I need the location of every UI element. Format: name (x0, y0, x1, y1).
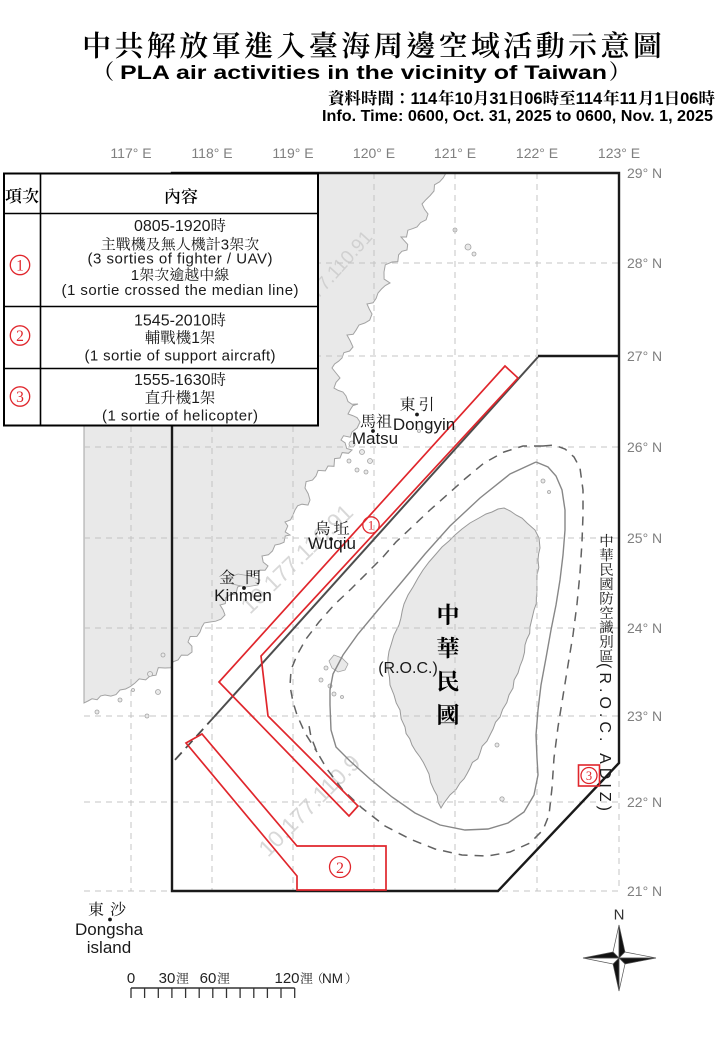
svg-text:123° E: 123° E (598, 145, 640, 161)
svg-text:Wuqiu: Wuqiu (308, 534, 356, 553)
svg-text:120: 120 (274, 970, 299, 987)
svg-text:2: 2 (336, 860, 344, 877)
svg-text:24° N: 24° N (627, 620, 662, 636)
svg-text:114: 114 (576, 90, 603, 108)
svg-text:114: 114 (411, 90, 438, 108)
svg-text:23° N: 23° N (627, 708, 662, 724)
svg-text:2: 2 (16, 328, 24, 345)
svg-text:Dongsha: Dongsha (75, 920, 144, 939)
svg-text:(1 sortie of support aircraft): (1 sortie of support aircraft) (85, 348, 276, 365)
svg-text:120° E: 120° E (353, 145, 395, 161)
svg-text:22° N: 22° N (627, 794, 662, 810)
svg-text:122° E: 122° E (516, 145, 558, 161)
svg-text:21° N: 21° N (627, 883, 662, 899)
svg-text:27° N: 27° N (627, 348, 662, 364)
svg-text:1545-2010: 1545-2010 (134, 313, 211, 330)
svg-text:31: 31 (489, 90, 507, 108)
svg-text:117° E: 117° E (110, 145, 151, 161)
svg-text:(1 sortie crossed the median l: (1 sortie crossed the median line) (62, 282, 299, 299)
svg-text:11: 11 (620, 90, 637, 108)
svg-text:0805-1920: 0805-1920 (134, 218, 211, 235)
svg-text:3: 3 (586, 769, 592, 783)
svg-text:30: 30 (159, 970, 176, 987)
svg-text:3: 3 (16, 389, 24, 406)
svg-text:island: island (87, 938, 131, 957)
svg-text:1: 1 (654, 90, 663, 108)
svg-text:1: 1 (16, 258, 24, 275)
svg-text:25° N: 25° N (627, 530, 662, 546)
svg-text:121° E: 121° E (434, 145, 476, 161)
svg-text:(1 sortie of helicopter): (1 sortie of helicopter) (102, 408, 258, 425)
svg-text:Dongyin: Dongyin (393, 415, 455, 434)
svg-text:06: 06 (680, 90, 698, 108)
svg-text:(3 sorties of fighter / UAV): (3 sorties of fighter / UAV) (88, 251, 273, 268)
svg-text:1: 1 (191, 390, 200, 407)
svg-text:1555-1630: 1555-1630 (134, 372, 211, 389)
svg-text:NM: NM (322, 971, 343, 986)
svg-text:28° N: 28° N (627, 255, 662, 271)
svg-text:1: 1 (368, 518, 375, 533)
svg-text:0: 0 (127, 970, 135, 987)
svg-text:119° E: 119° E (272, 145, 313, 161)
svg-text:118° E: 118° E (191, 145, 232, 161)
svg-text:10: 10 (455, 90, 473, 108)
svg-text:N: N (614, 907, 625, 924)
svg-text:Matsu: Matsu (352, 429, 398, 448)
svg-text:26° N: 26° N (627, 439, 662, 455)
svg-text:Info. Time: 0600, Oct. 31, 202: Info. Time: 0600, Oct. 31, 2025 to 0600,… (322, 108, 713, 125)
svg-text:PLA air activities in the vici: PLA air activities in the vicinity of Ta… (120, 62, 607, 84)
svg-text:1: 1 (191, 330, 200, 347)
svg-text:(R.O.C.): (R.O.C.) (378, 660, 438, 677)
svg-text:29° N: 29° N (627, 165, 662, 181)
svg-text:06: 06 (524, 90, 542, 108)
svg-text:60: 60 (200, 970, 217, 987)
svg-text:Kinmen: Kinmen (214, 586, 272, 605)
